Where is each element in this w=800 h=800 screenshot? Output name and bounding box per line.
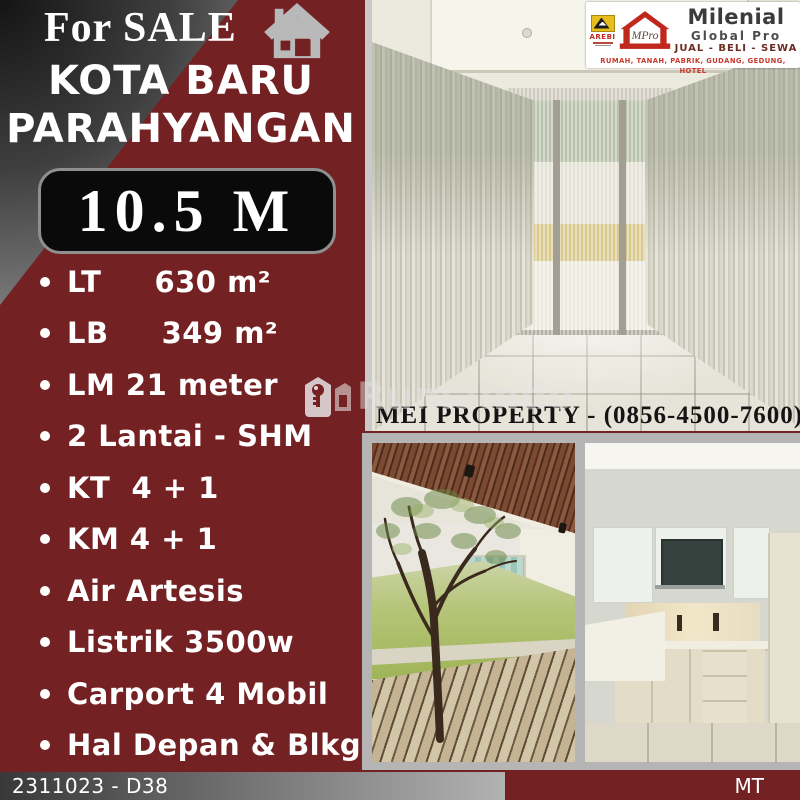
bullet-icon [40,328,50,338]
footer-bar: 2311023 - D38 MT [0,772,800,800]
arebi-label: AREBI [589,33,615,41]
drawer-stack [703,649,747,725]
agency-logo-box: AREBI MPro Milenial Global Pro JUAL - BE… [586,2,800,68]
home-icon [262,2,332,60]
agency-row: AREBI MPro Milenial Global Pro JUAL - BE… [586,2,800,56]
arebi-emblem [591,15,615,32]
bullet-icon [40,740,50,750]
brand-subtitle: Global Pro [691,30,781,42]
brand-services: JUAL - BELI - SEWA [675,44,798,54]
mpro-label: MPro [631,29,659,42]
location-line2: PARAHYANGAN [0,105,362,153]
bullet-icon [40,586,50,596]
list-item: Listrik 3500w [40,617,361,669]
list-item: KM 4 + 1 [40,514,361,566]
list-item: LB 349 m² [40,308,361,360]
list-item: 2 Lantai - SHM [40,411,361,463]
list-item: KT 4 + 1 [40,462,361,514]
arebi-logo-icon: AREBI [589,15,616,46]
list-item: Hal Depan & Blkg [40,720,361,772]
photo-garden [372,443,575,762]
bullet-icon [40,277,50,287]
brand-text-block: Milenial Global Pro JUAL - BELI - SEWA [674,7,798,54]
list-item: Carport 4 Mobil [40,668,361,720]
location-line1: KOTA BARU [0,57,362,105]
agent-initials: MT [735,774,764,798]
tall-cabinet-panel [768,533,800,733]
downlight [522,28,532,38]
upper-cabinet [733,527,770,599]
brand-categories: RUMAH, TANAH, PABRIK, GUDANG, GEDUNG, HO… [586,56,800,68]
photo-kitchen [585,443,800,762]
kitchen-tv [661,539,723,587]
price-badge: 10.5 M [38,168,336,254]
bottle [713,613,719,631]
listing-id: 2311023 - D38 [12,774,168,798]
mpro-logo-icon: MPro [618,7,672,53]
bullet-icon [40,637,50,647]
contact-phone: MEI PROPERTY - (0856-4500-7600) [374,402,800,430]
list-item: LM 21 meter [40,359,361,411]
garden-tree [372,471,522,746]
arebi-divider [595,45,611,46]
bullet-icon [40,483,50,493]
door-frame [553,100,560,335]
location-title: KOTA BARU PARAHYANGAN [0,57,362,153]
list-item: Air Artesis [40,565,361,617]
kitchen-ceiling [585,443,800,469]
bullet-icon [40,534,50,544]
photo-strip [362,433,800,770]
brand-name: Milenial [687,7,784,28]
kitchen-peninsula [585,611,665,681]
door-frame [619,100,626,335]
bullet-icon [40,689,50,699]
for-sale-title: For SALE [44,4,244,52]
bullet-icon [40,380,50,390]
upper-cabinet [593,527,653,603]
bottle [677,615,682,631]
price-value: 10.5 M [78,177,297,246]
bullet-icon [40,431,50,441]
tv-shelf [655,585,725,589]
footer-id-strip: 2311023 - D38 [0,772,505,800]
kitchen-floor [585,723,800,762]
feature-list: LT 630 m² LB 349 m² LM 21 meter 2 Lantai… [40,256,361,771]
arebi-divider [593,42,613,44]
property-sale-flyer: For SALE KOTA BARU PARAHYANGAN 10.5 M LT… [0,0,800,800]
list-item: LT 630 m² [40,256,361,308]
